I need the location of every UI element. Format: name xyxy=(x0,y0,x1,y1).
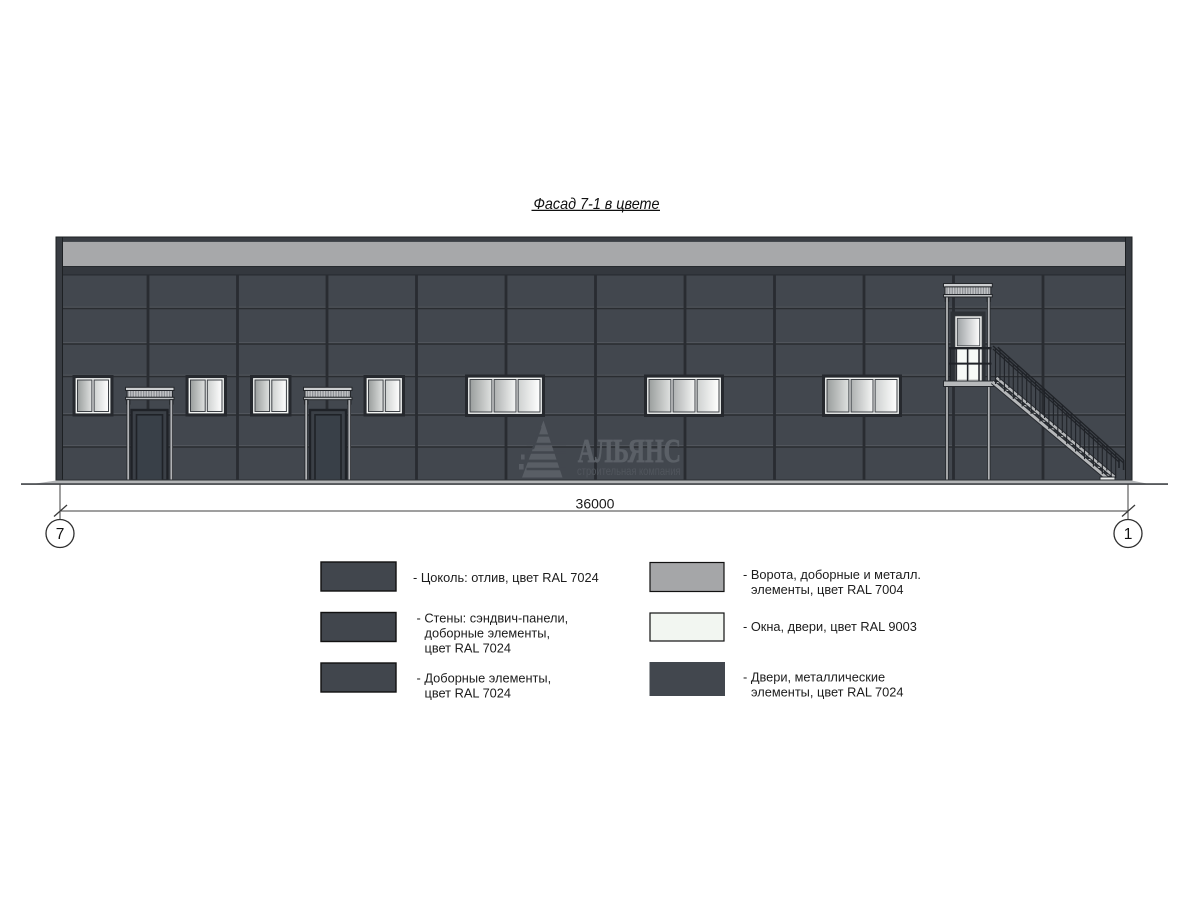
svg-text:- Цоколь: отлив, цвет RAL 7024: - Цоколь: отлив, цвет RAL 7024 xyxy=(413,570,599,585)
svg-text:строительная компания: строительная компания xyxy=(577,464,681,478)
svg-text:элементы, цвет RAL 7004: элементы, цвет RAL 7004 xyxy=(751,582,904,597)
svg-text:- Ворота, доборные и металл.: - Ворота, доборные и металл. xyxy=(743,567,921,582)
svg-text:- Двери, металлические: - Двери, металлические xyxy=(743,670,885,685)
svg-text:цвет RAL 7024: цвет RAL 7024 xyxy=(425,686,512,701)
svg-text:7: 7 xyxy=(56,526,65,543)
svg-text:доборные элементы,: доборные элементы, xyxy=(425,626,551,641)
svg-text:- Окна, двери, цвет RAL 9003: - Окна, двери, цвет RAL 9003 xyxy=(743,619,917,634)
svg-text:- Стены: сэндвич-панели,: - Стены: сэндвич-панели, xyxy=(417,611,569,626)
svg-text:1: 1 xyxy=(1124,526,1133,543)
svg-text:36000: 36000 xyxy=(576,496,615,512)
svg-text:цвет RAL 7024: цвет RAL 7024 xyxy=(425,641,512,656)
svg-text:- Доборные элементы,: - Доборные элементы, xyxy=(417,671,552,686)
svg-text:элементы, цвет RAL 7024: элементы, цвет RAL 7024 xyxy=(751,685,904,700)
